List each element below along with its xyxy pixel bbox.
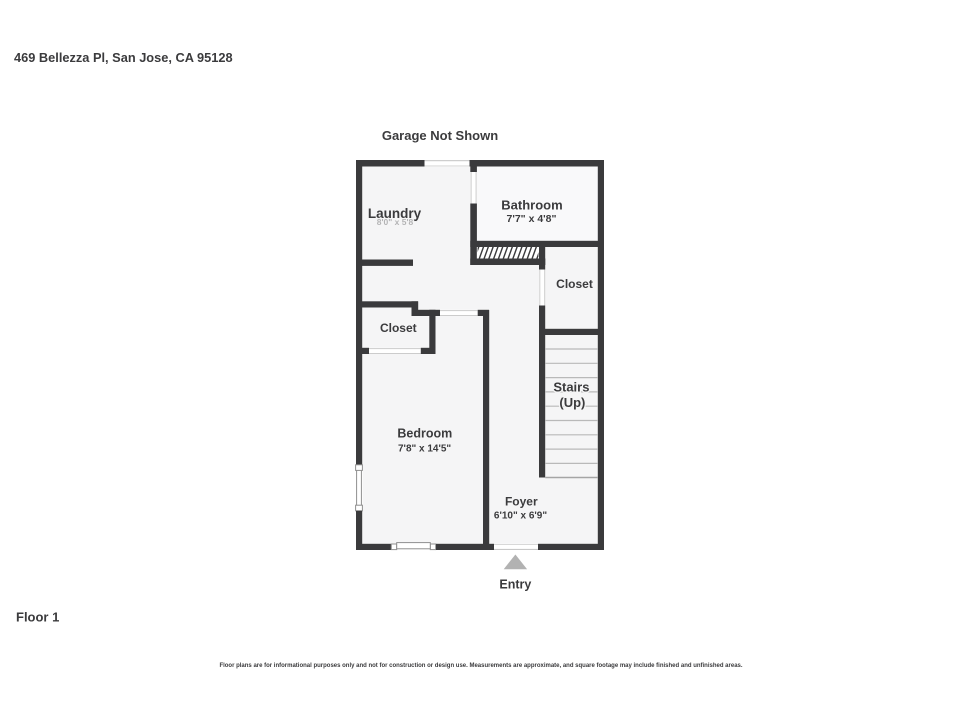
- svg-text:6'10" x 6'9": 6'10" x 6'9": [494, 511, 547, 522]
- svg-text:Closet: Closet: [556, 277, 593, 291]
- svg-text:Floor plans are for informatio: Floor plans are for informational purpos…: [219, 663, 742, 669]
- svg-text:Stairs: Stairs: [553, 379, 589, 394]
- svg-text:Bathroom: Bathroom: [501, 197, 562, 212]
- svg-text:7'8" x 14'5": 7'8" x 14'5": [398, 443, 451, 454]
- svg-text:Closet: Closet: [380, 321, 417, 335]
- svg-text:Garage Not Shown: Garage Not Shown: [382, 128, 498, 143]
- svg-text:7'7" x 4'8": 7'7" x 4'8": [507, 213, 557, 225]
- svg-text:Foyer: Foyer: [505, 495, 538, 509]
- svg-text:Entry: Entry: [499, 578, 531, 592]
- svg-text:469 Bellezza Pl, San Jose, CA: 469 Bellezza Pl, San Jose, CA 95128: [14, 50, 233, 65]
- svg-text:8'0" x 5'8": 8'0" x 5'8": [377, 217, 417, 227]
- svg-text:(Up): (Up): [559, 395, 585, 410]
- svg-text:Floor 1: Floor 1: [16, 610, 59, 625]
- svg-text:Bedroom: Bedroom: [397, 427, 452, 441]
